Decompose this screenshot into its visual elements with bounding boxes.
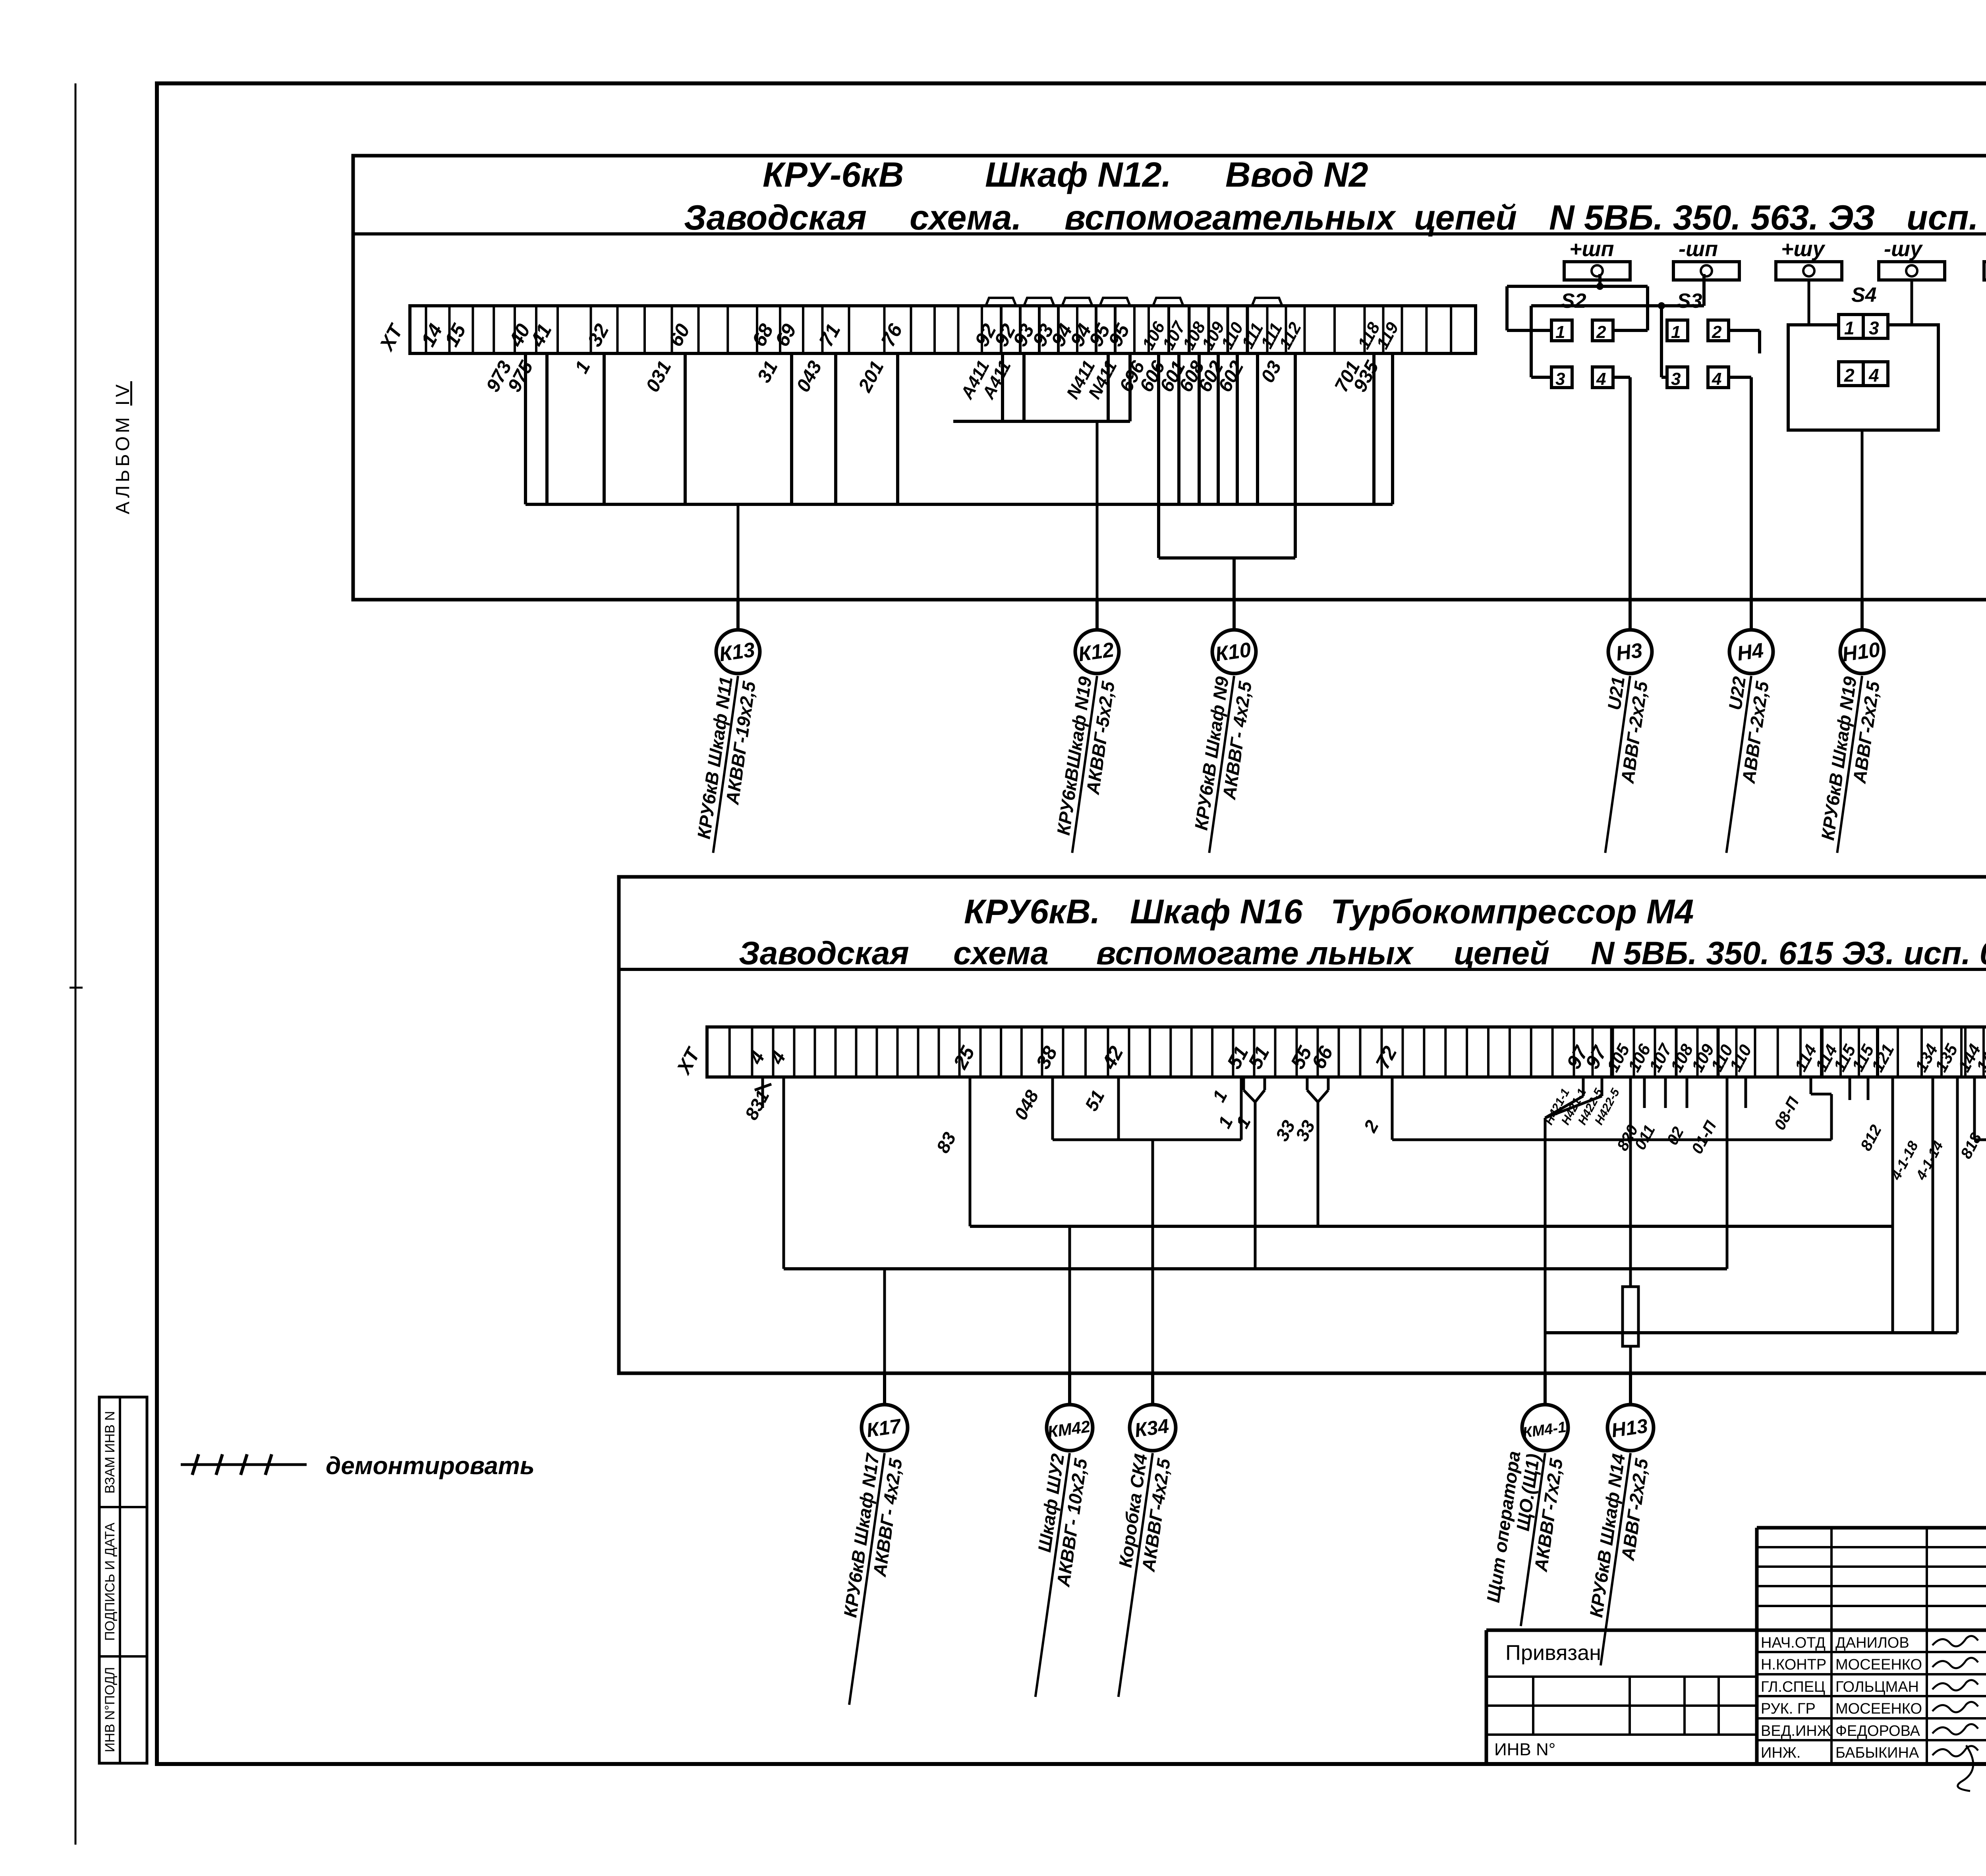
svg-text:S2: S2 <box>1561 290 1586 313</box>
svg-text:4: 4 <box>1596 369 1606 389</box>
svg-text:КРУ6кВ.: КРУ6кВ. <box>964 893 1100 931</box>
svg-text:ГЛ.СПЕЦ: ГЛ.СПЕЦ <box>1761 1679 1825 1695</box>
svg-text:Н4: Н4 <box>1736 639 1765 666</box>
svg-text:ИНЖ.: ИНЖ. <box>1761 1745 1801 1761</box>
svg-text:2: 2 <box>1844 365 1855 386</box>
svg-text:S4: S4 <box>1851 284 1877 307</box>
svg-text:+шу: +шу <box>1781 237 1826 261</box>
svg-text:АЛЬБОМ IV: АЛЬБОМ IV <box>112 381 133 514</box>
svg-text:Шкаф N16: Шкаф N16 <box>1130 893 1303 931</box>
svg-text:вспомогате льных: вспомогате льных <box>1096 935 1414 971</box>
svg-text:НАЧ.ОТД: НАЧ.ОТД <box>1761 1635 1826 1651</box>
svg-text:исп. 000: исп. 000 <box>1907 198 1986 237</box>
svg-text:ИНВ N°ПОДЛ: ИНВ N°ПОДЛ <box>102 1667 118 1752</box>
svg-text:К13: К13 <box>718 638 756 666</box>
svg-text:Привязан: Привязан <box>1505 1641 1601 1665</box>
svg-text:Заводская: Заводская <box>739 935 909 971</box>
svg-text:2: 2 <box>1596 322 1606 342</box>
svg-text:1: 1 <box>1844 318 1855 338</box>
svg-text:схема.: схема. <box>910 198 1022 237</box>
svg-text:2: 2 <box>1712 322 1722 342</box>
svg-text:ГОЛЬЦМАН: ГОЛЬЦМАН <box>1835 1679 1919 1695</box>
svg-text:ВЗАМ ИНВ N: ВЗАМ ИНВ N <box>102 1411 118 1494</box>
svg-text:ФЕДОРОВА: ФЕДОРОВА <box>1835 1723 1920 1739</box>
svg-text:4: 4 <box>1712 369 1721 389</box>
svg-text:ВЕД.ИНЖ: ВЕД.ИНЖ <box>1761 1723 1831 1739</box>
svg-text:МОСЕЕНКО: МОСЕЕНКО <box>1835 1656 1922 1673</box>
svg-text:-шп: -шп <box>1679 237 1718 261</box>
svg-text:К10: К10 <box>1214 638 1252 666</box>
svg-text:КРУ-6кВ: КРУ-6кВ <box>763 155 904 194</box>
svg-text:Шкаф N12.: Шкаф N12. <box>985 155 1171 194</box>
svg-text:БАБЫКИНА: БАБЫКИНА <box>1835 1745 1919 1761</box>
svg-text:Н.КОНТР: Н.КОНТР <box>1761 1656 1826 1673</box>
svg-text:вспомогательных: вспомогательных <box>1064 198 1396 237</box>
svg-text:Заводская: Заводская <box>684 198 867 237</box>
svg-text:РУК. ГР: РУК. ГР <box>1761 1700 1816 1717</box>
svg-text:N 5ВБ. 350. 563. ЭЗ: N 5ВБ. 350. 563. ЭЗ <box>1549 198 1875 237</box>
svg-text:демонтировать: демонтировать <box>326 1452 535 1480</box>
svg-text:-шу: -шу <box>1884 237 1923 261</box>
svg-text:4: 4 <box>1868 365 1879 386</box>
svg-text:3: 3 <box>1555 369 1565 389</box>
svg-text:N 5ВБ. 350. 615 ЭЗ. исп. 042: N 5ВБ. 350. 615 ЭЗ. исп. 042 <box>1591 935 1986 971</box>
svg-text:3: 3 <box>1869 318 1879 338</box>
svg-text:ДАНИЛОВ: ДАНИЛОВ <box>1835 1635 1909 1651</box>
svg-text:цепей: цепей <box>1414 198 1517 237</box>
svg-text:К12: К12 <box>1077 638 1115 666</box>
svg-text:Турбокомпрессор М4: Турбокомпрессор М4 <box>1331 893 1694 931</box>
svg-text:цепей: цепей <box>1454 935 1549 971</box>
svg-text:К34: К34 <box>1133 1415 1170 1441</box>
svg-text:схема: схема <box>953 935 1049 971</box>
svg-text:Н3: Н3 <box>1615 639 1644 666</box>
svg-text:1: 1 <box>1555 322 1565 342</box>
svg-text:1: 1 <box>1671 322 1681 342</box>
svg-text:ПОДПИСЬ И ДАТА: ПОДПИСЬ И ДАТА <box>102 1523 118 1641</box>
svg-text:МОСЕЕНКО: МОСЕЕНКО <box>1835 1700 1922 1717</box>
svg-text:Ввод N2: Ввод N2 <box>1225 155 1368 194</box>
svg-text:S3: S3 <box>1677 290 1702 313</box>
svg-text:ИНВ N°: ИНВ N° <box>1494 1740 1555 1759</box>
svg-text:3: 3 <box>1671 369 1681 389</box>
svg-text:+шп: +шп <box>1569 237 1614 261</box>
